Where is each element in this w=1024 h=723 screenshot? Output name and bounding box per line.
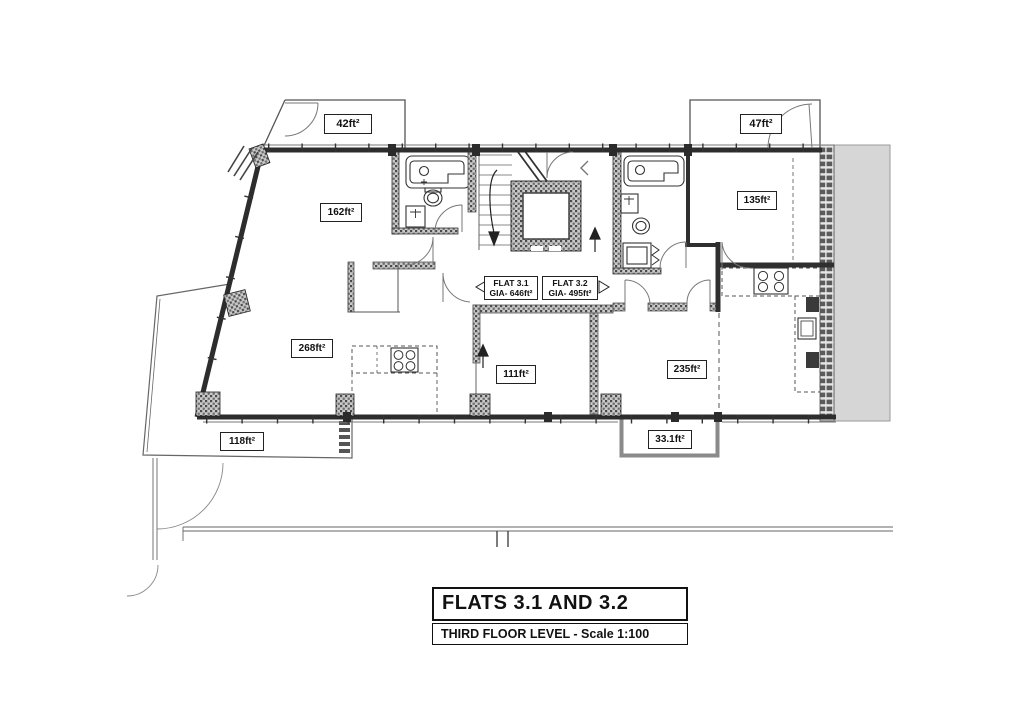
bathroom32-door (660, 242, 686, 268)
flat-31-name: FLAT 3.1 (487, 278, 535, 288)
lobby-up-arrow (590, 228, 600, 239)
closet-wall (348, 262, 354, 312)
door-indicator (581, 161, 588, 175)
core-wall-left (468, 150, 476, 212)
flat32-hall-door (625, 280, 650, 305)
flat-32-label: FLAT 3.2 GIA- 495ft² (542, 276, 598, 300)
drawing-title: FLATS 3.1 AND 3.2 (432, 587, 688, 621)
area-label-room-111: 111ft² (496, 365, 536, 384)
closet-outline (348, 265, 400, 312)
stair-down-arrow (490, 170, 497, 233)
adjacent-building (820, 145, 890, 421)
core-wall-right (613, 150, 621, 273)
party-wall (820, 145, 834, 421)
area-label-room-268: 268ft² (291, 339, 333, 358)
terrace-drain (339, 421, 350, 453)
title-block: FLATS 3.1 AND 3.2 THIRD FLOOR LEVEL - Sc… (432, 587, 688, 645)
stair-lobby-door (547, 152, 573, 178)
room162-door (405, 237, 433, 265)
hall-wall-32 (648, 303, 687, 311)
flat32-pointer (599, 281, 609, 293)
flat-32-gia: GIA- 495ft² (545, 288, 595, 298)
living235-door (687, 280, 710, 303)
site-boundary-lines (127, 458, 893, 596)
room162-wall-bottom (373, 262, 435, 269)
corridor-wall-31 (473, 305, 613, 313)
shower-door (652, 245, 659, 265)
flat-31-label: FLAT 3.1 GIA- 646ft² (484, 276, 538, 300)
area-label-room-235: 235ft² (667, 360, 707, 379)
floor-plan-page: 42ft² 162ft² 268ft² 118ft² 111ft² 235ft²… (0, 0, 1024, 723)
area-label-terrace-47: 47ft² (740, 114, 782, 134)
area-label-room-135: 135ft² (737, 191, 777, 210)
basin (621, 194, 638, 213)
toilet (633, 218, 650, 234)
kitchen-flat31 (352, 346, 437, 416)
area-label-terrace-118: 118ft² (220, 432, 264, 451)
flat31-entrance-door (443, 273, 470, 302)
lift-car (523, 193, 569, 239)
bathroom31-wall-bottom (392, 228, 458, 234)
bathroom32-wall-bottom (613, 268, 661, 274)
area-label-terrace-42: 42ft² (324, 114, 372, 134)
bathroom-flat32 (613, 150, 684, 274)
area-label-room-162: 162ft² (320, 203, 362, 222)
site-gate-swing (157, 463, 223, 529)
flat-32-name: FLAT 3.2 (545, 278, 595, 288)
flat-31-gia: GIA- 646ft² (487, 288, 535, 298)
area-label-balcony-331: 33.1ft² (648, 430, 692, 449)
bathroom31-wall-left (392, 150, 399, 234)
drawing-subtitle: THIRD FLOOR LEVEL - Scale 1:100 (432, 623, 688, 645)
stair-core (468, 150, 581, 251)
bathroom-flat31 (392, 150, 470, 234)
terrace42-door (285, 103, 318, 136)
room111-wall-right (590, 313, 598, 414)
